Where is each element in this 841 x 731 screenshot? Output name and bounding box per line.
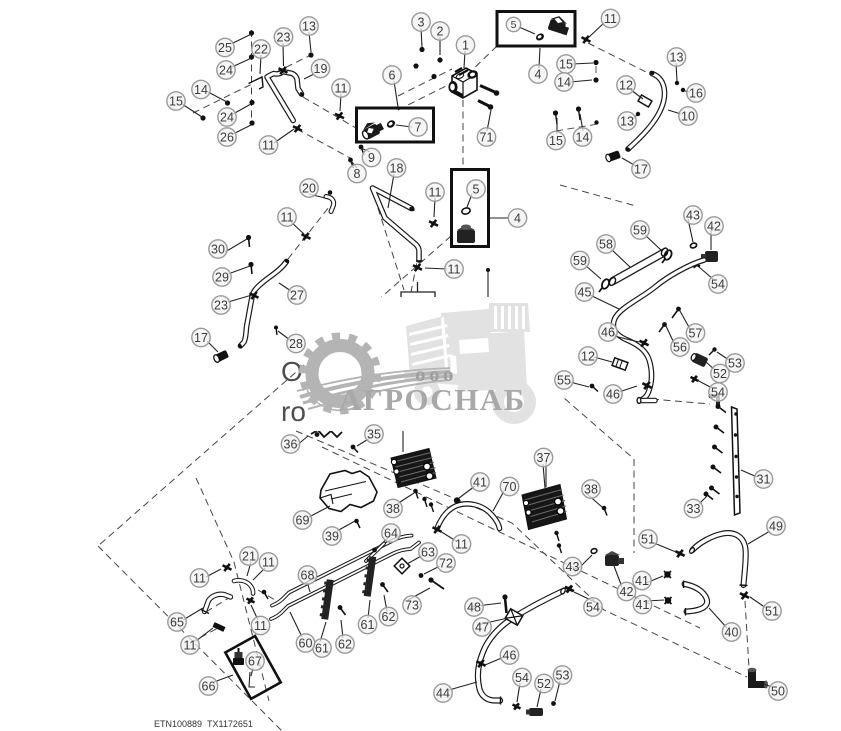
svg-text:46: 46 (503, 648, 517, 662)
svg-text:28: 28 (289, 337, 303, 351)
svg-text:13: 13 (302, 19, 316, 33)
svg-text:42: 42 (620, 585, 634, 599)
svg-text:14: 14 (557, 75, 571, 89)
svg-text:11: 11 (335, 81, 348, 95)
svg-text:6: 6 (389, 68, 396, 82)
svg-text:16: 16 (689, 86, 703, 100)
svg-text:13: 13 (670, 50, 684, 64)
svg-text:23: 23 (214, 298, 228, 312)
svg-text:21: 21 (242, 549, 256, 563)
svg-text:43: 43 (686, 208, 700, 222)
svg-text:24: 24 (220, 110, 234, 124)
svg-text:14: 14 (576, 130, 590, 144)
svg-text:17: 17 (634, 162, 648, 176)
svg-text:58: 58 (599, 237, 613, 251)
svg-text:51: 51 (765, 604, 779, 618)
svg-text:38: 38 (386, 502, 400, 516)
svg-text:3: 3 (418, 15, 425, 29)
svg-text:27: 27 (290, 288, 304, 302)
svg-text:41: 41 (636, 598, 650, 612)
svg-text:53: 53 (556, 668, 570, 682)
svg-text:18: 18 (390, 161, 404, 175)
svg-text:11: 11 (429, 185, 442, 199)
svg-text:19: 19 (314, 62, 328, 76)
svg-text:66: 66 (202, 679, 216, 693)
svg-text:1: 1 (462, 38, 469, 52)
svg-text:22: 22 (254, 42, 268, 56)
svg-text:29: 29 (215, 270, 229, 284)
svg-text:49: 49 (769, 519, 783, 533)
svg-text:40: 40 (725, 625, 739, 639)
svg-text:7: 7 (415, 120, 422, 134)
svg-text:26: 26 (220, 130, 234, 144)
svg-text:67: 67 (248, 654, 262, 668)
svg-text:54: 54 (711, 277, 725, 291)
svg-text:69: 69 (296, 513, 310, 527)
svg-text:68: 68 (301, 568, 315, 582)
svg-text:43: 43 (566, 560, 580, 574)
svg-text:АГРОСНАБ: АГРОСНАБ (339, 382, 526, 417)
svg-text:44: 44 (436, 686, 450, 700)
svg-text:73: 73 (405, 598, 419, 612)
svg-text:56: 56 (673, 340, 687, 354)
svg-text:11: 11 (455, 537, 468, 551)
svg-text:60: 60 (299, 636, 313, 650)
svg-text:62: 62 (338, 637, 352, 651)
svg-text:35: 35 (367, 427, 381, 441)
svg-text:46: 46 (606, 387, 620, 401)
svg-text:ro: ro (281, 396, 306, 427)
svg-text:11: 11 (262, 138, 275, 152)
svg-text:31: 31 (757, 472, 771, 486)
svg-text:23: 23 (277, 30, 291, 44)
svg-text:71: 71 (480, 130, 494, 144)
svg-text:13: 13 (620, 114, 634, 128)
svg-text:14: 14 (194, 83, 208, 97)
svg-text:48: 48 (467, 600, 481, 614)
svg-text:46: 46 (601, 325, 615, 339)
svg-text:24: 24 (219, 63, 233, 77)
svg-text:61: 61 (315, 641, 329, 655)
svg-text:11: 11 (184, 638, 197, 652)
svg-text:59: 59 (633, 223, 647, 237)
svg-text:12: 12 (581, 349, 595, 363)
svg-text:62: 62 (382, 610, 396, 624)
svg-text:11: 11 (262, 555, 275, 569)
svg-text:4: 4 (514, 211, 521, 225)
svg-text:72: 72 (439, 556, 453, 570)
svg-text:30: 30 (211, 242, 225, 256)
svg-text:11: 11 (254, 619, 267, 633)
svg-text:5: 5 (473, 182, 480, 196)
svg-text:10: 10 (681, 109, 695, 123)
svg-text:8: 8 (354, 167, 361, 181)
svg-text:65: 65 (170, 615, 184, 629)
svg-text:50: 50 (771, 684, 785, 698)
svg-text:20: 20 (302, 181, 316, 195)
svg-text:2: 2 (437, 24, 444, 38)
svg-text:15: 15 (549, 134, 563, 148)
svg-text:52: 52 (537, 677, 551, 691)
svg-text:54: 54 (586, 600, 600, 614)
svg-text:63: 63 (421, 545, 435, 559)
svg-text:51: 51 (641, 532, 655, 546)
svg-text:15: 15 (559, 57, 573, 71)
svg-text:41: 41 (473, 475, 487, 489)
svg-text:11: 11 (604, 12, 617, 26)
svg-text:17: 17 (194, 331, 208, 345)
svg-text:41: 41 (635, 574, 649, 588)
svg-text:45: 45 (578, 285, 592, 299)
svg-text:39: 39 (325, 529, 339, 543)
svg-text:11: 11 (193, 571, 206, 585)
svg-text:38: 38 (584, 482, 598, 496)
svg-text:33: 33 (687, 502, 701, 516)
svg-text:5: 5 (511, 19, 517, 31)
svg-text:64: 64 (384, 526, 398, 540)
svg-text:11: 11 (281, 210, 294, 224)
svg-text:ETN100889 TX1172651: ETN100889 TX1172651 (154, 719, 253, 729)
svg-text:61: 61 (361, 618, 375, 632)
svg-text:42: 42 (707, 219, 721, 233)
svg-text:70: 70 (503, 480, 517, 494)
svg-text:36: 36 (284, 437, 298, 451)
svg-text:25: 25 (218, 41, 232, 55)
svg-text:37: 37 (537, 451, 551, 465)
svg-text:15: 15 (169, 94, 183, 108)
svg-text:9: 9 (368, 151, 375, 165)
svg-text:11: 11 (448, 262, 461, 276)
svg-text:12: 12 (619, 78, 633, 92)
svg-text:59: 59 (573, 254, 587, 268)
svg-text:54: 54 (711, 385, 725, 399)
svg-text:4: 4 (535, 67, 542, 81)
svg-text:54: 54 (515, 671, 529, 685)
svg-text:57: 57 (689, 326, 703, 340)
svg-text:52: 52 (713, 367, 727, 381)
svg-text:55: 55 (557, 373, 571, 387)
svg-text:53: 53 (728, 356, 742, 370)
svg-text:47: 47 (475, 620, 489, 634)
